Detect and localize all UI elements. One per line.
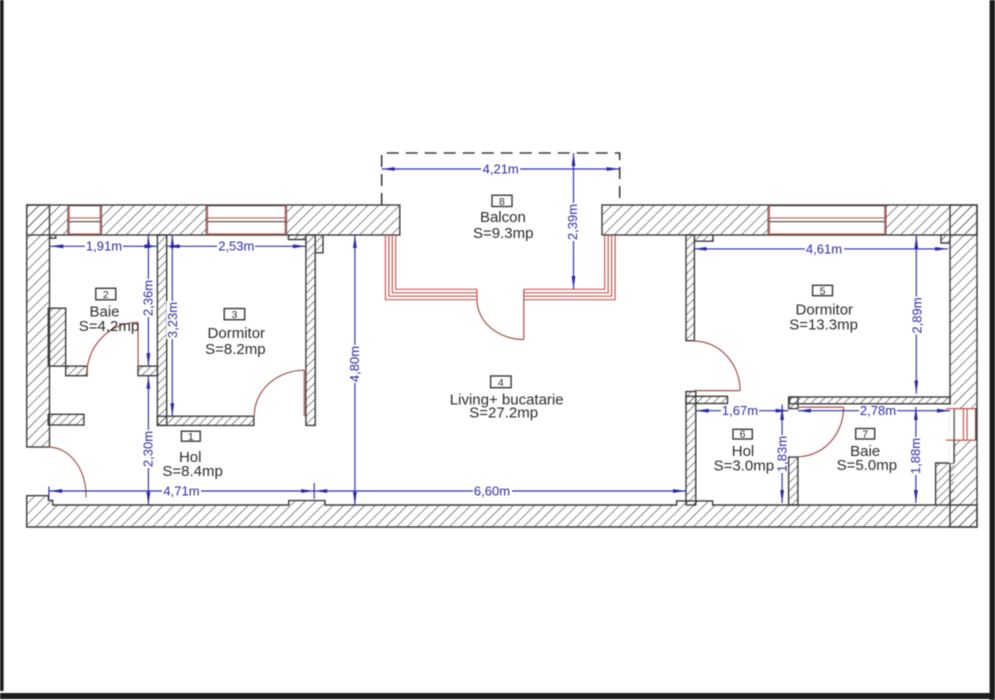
- svg-text:4,21m: 4,21m: [483, 162, 519, 177]
- svg-text:2,78m: 2,78m: [860, 403, 896, 418]
- svg-text:2,39m: 2,39m: [565, 204, 580, 240]
- svg-text:2,53m: 2,53m: [218, 239, 254, 254]
- svg-text:1,91m: 1,91m: [86, 239, 122, 254]
- svg-text:1,67m: 1,67m: [722, 403, 758, 418]
- svg-text:5: 5: [820, 285, 826, 297]
- svg-text:6,60m: 6,60m: [474, 483, 510, 498]
- svg-text:S=9.3mp: S=9.3mp: [473, 225, 533, 242]
- svg-text:S=3.0mp: S=3.0mp: [714, 457, 774, 474]
- svg-text:1,88m: 1,88m: [908, 438, 923, 474]
- svg-text:S=27.2mp: S=27.2mp: [469, 405, 538, 422]
- svg-text:2,36m: 2,36m: [141, 280, 156, 316]
- svg-text:2,30m: 2,30m: [141, 431, 156, 467]
- svg-text:Dormitor: Dormitor: [208, 325, 266, 342]
- svg-text:4: 4: [498, 377, 504, 389]
- svg-text:4,71m: 4,71m: [163, 483, 199, 498]
- svg-text:3: 3: [231, 309, 237, 321]
- svg-text:4,80m: 4,80m: [347, 346, 362, 382]
- svg-text:S=13.3mp: S=13.3mp: [789, 317, 858, 334]
- svg-text:8: 8: [499, 196, 505, 208]
- svg-text:3,23m: 3,23m: [165, 302, 180, 338]
- svg-text:6: 6: [740, 429, 746, 441]
- svg-text:1: 1: [188, 431, 194, 443]
- svg-text:Balcon: Balcon: [480, 209, 526, 226]
- svg-text:2: 2: [103, 289, 109, 301]
- svg-text:2,89m: 2,89m: [910, 297, 925, 333]
- svg-text:1,83m: 1,83m: [775, 436, 790, 472]
- svg-text:7: 7: [862, 429, 868, 441]
- svg-text:S=4,2mp: S=4,2mp: [79, 318, 139, 335]
- svg-text:S=8.2mp: S=8.2mp: [205, 341, 265, 358]
- svg-text:4,61m: 4,61m: [806, 241, 842, 256]
- svg-text:S=8.4mp: S=8.4mp: [162, 463, 222, 480]
- svg-text:S=5.0mp: S=5.0mp: [837, 457, 897, 474]
